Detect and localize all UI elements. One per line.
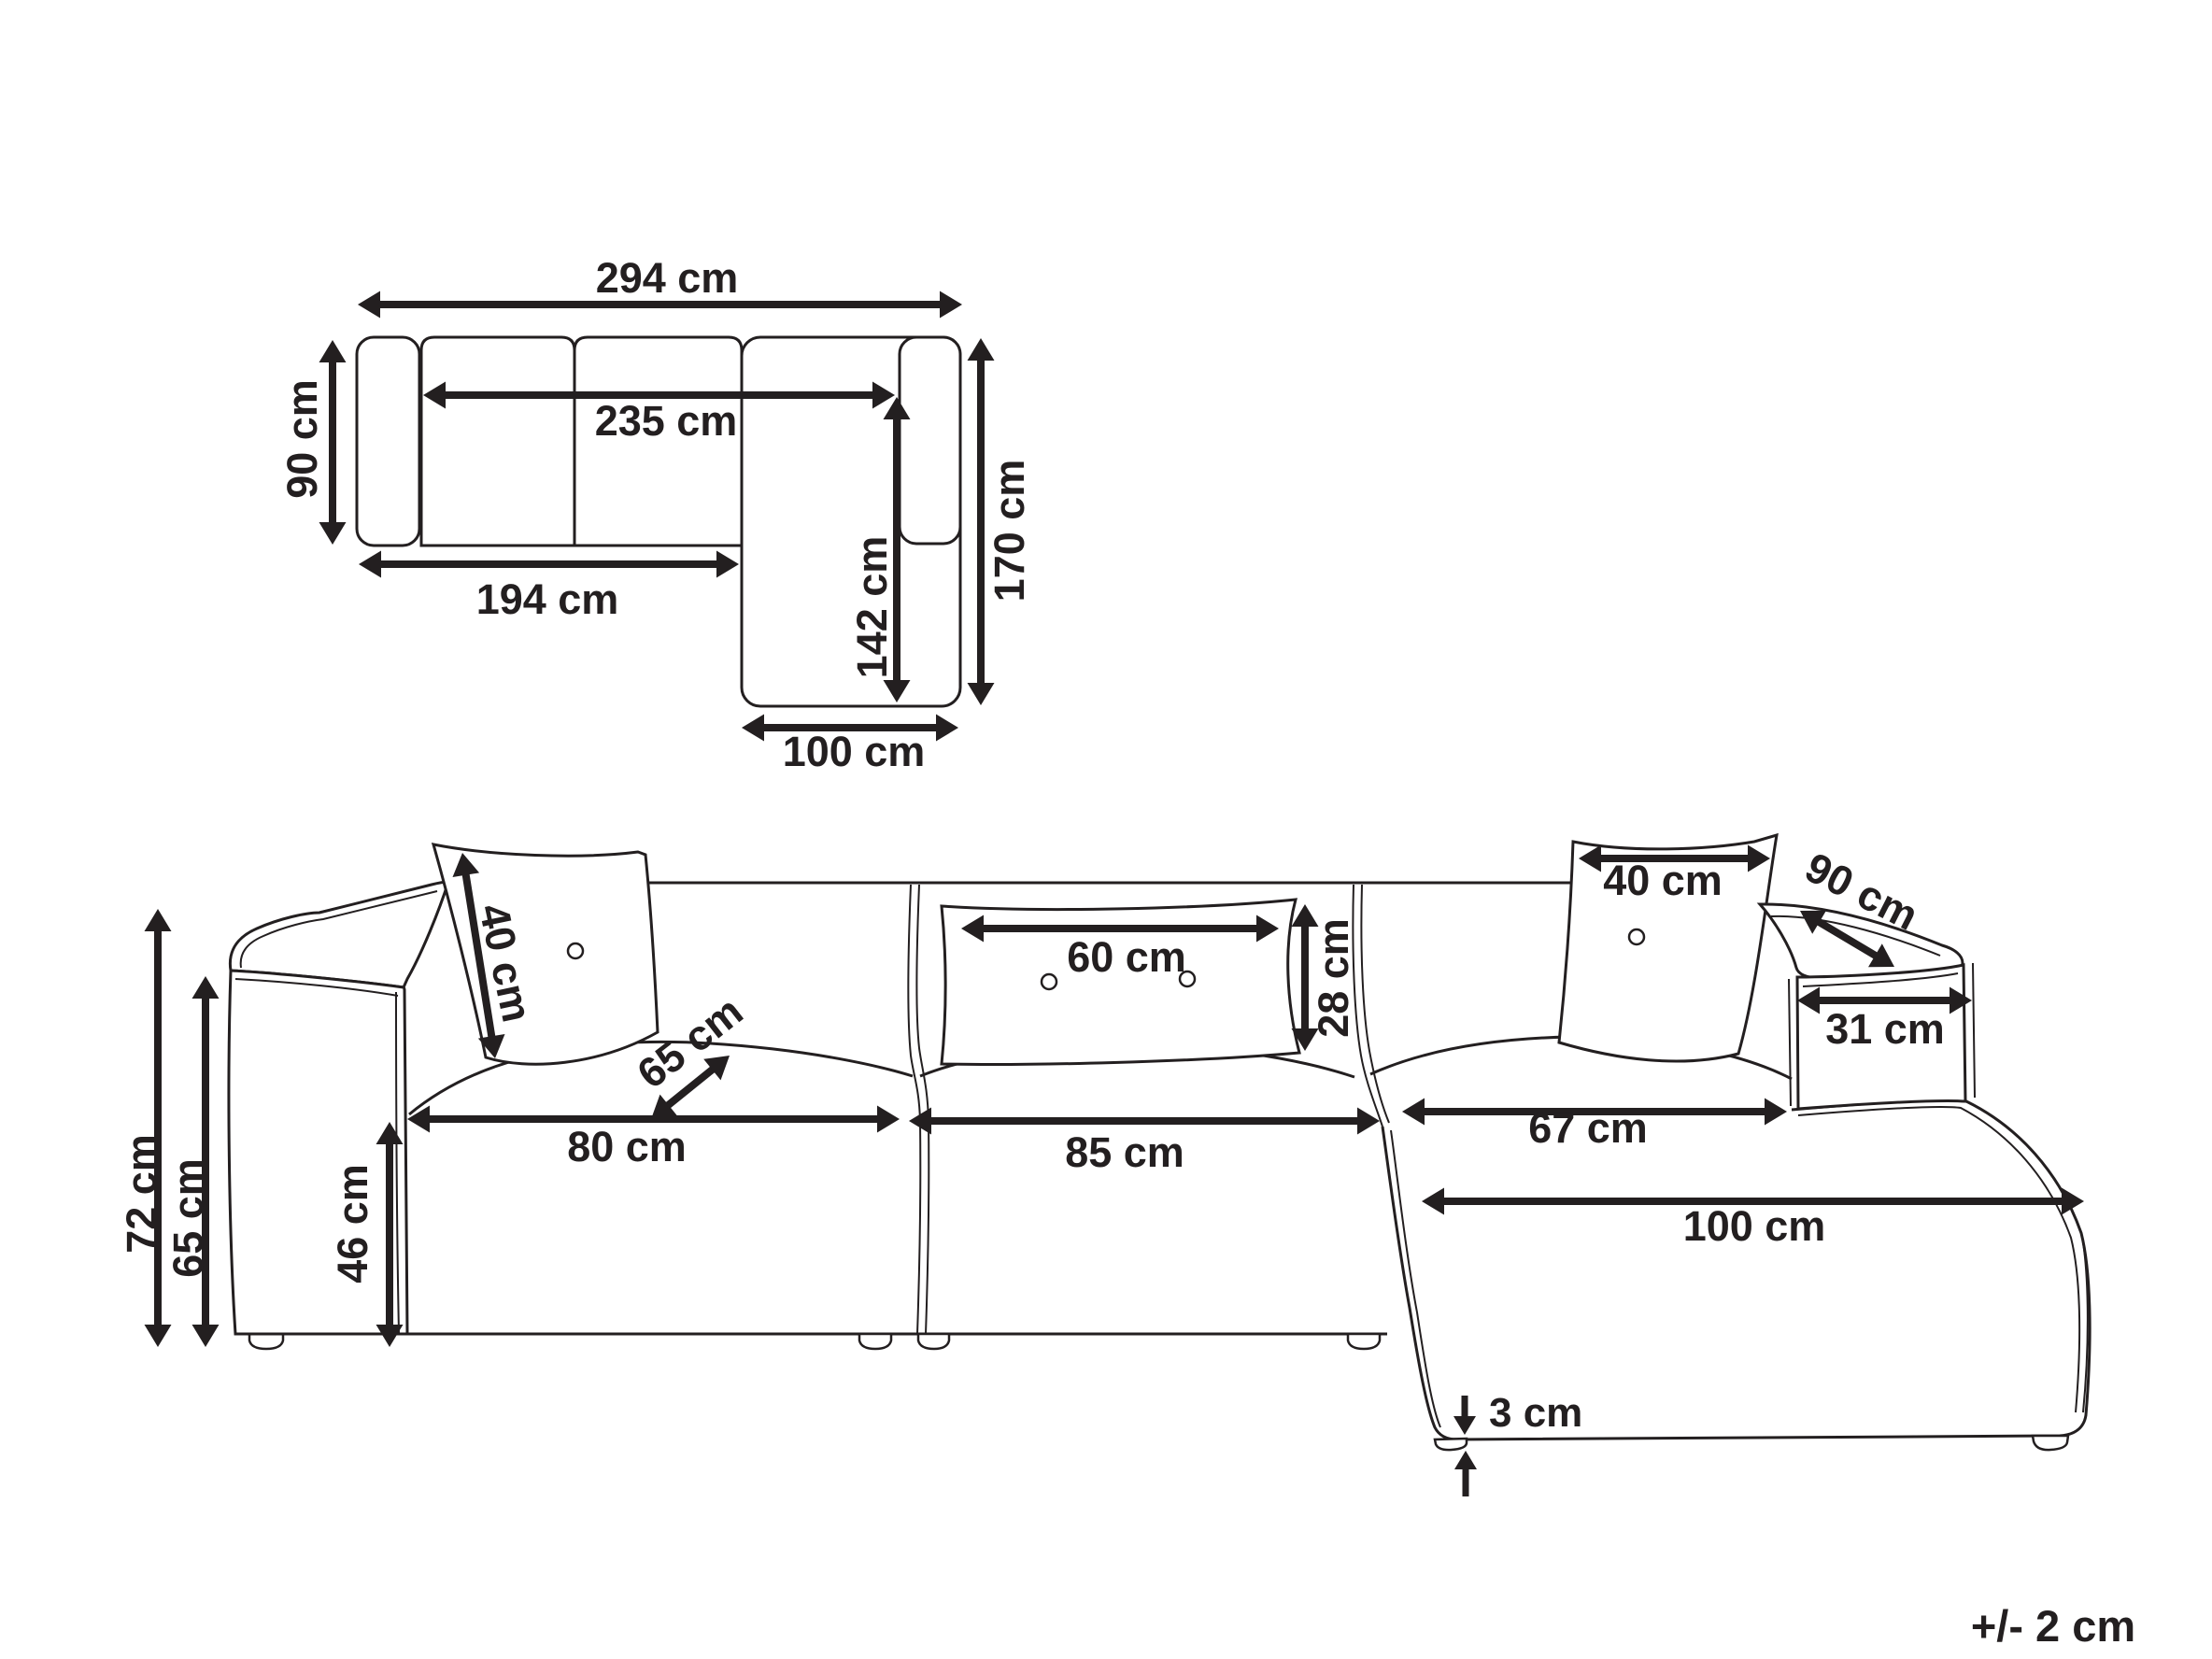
svg-text:+/- 2 cm: +/- 2 cm xyxy=(1971,1601,2135,1651)
svg-text:31 cm: 31 cm xyxy=(1825,1005,1945,1053)
svg-text:90 cm: 90 cm xyxy=(278,379,326,499)
svg-text:60 cm: 60 cm xyxy=(1067,933,1186,981)
svg-text:85 cm: 85 cm xyxy=(1065,1128,1184,1176)
svg-text:65 cm: 65 cm xyxy=(164,1158,212,1278)
svg-text:100 cm: 100 cm xyxy=(1683,1202,1826,1250)
svg-text:235 cm: 235 cm xyxy=(595,397,738,445)
svg-text:194 cm: 194 cm xyxy=(476,575,619,623)
svg-text:294 cm: 294 cm xyxy=(596,254,739,302)
svg-text:46 cm: 46 cm xyxy=(329,1164,376,1283)
svg-text:72 cm: 72 cm xyxy=(118,1134,165,1254)
svg-text:3 cm: 3 cm xyxy=(1489,1390,1582,1436)
svg-text:142 cm: 142 cm xyxy=(848,536,896,679)
svg-text:67 cm: 67 cm xyxy=(1528,1104,1648,1152)
svg-text:40 cm: 40 cm xyxy=(1603,857,1723,904)
svg-text:170 cm: 170 cm xyxy=(985,460,1033,603)
svg-text:100 cm: 100 cm xyxy=(783,728,926,775)
svg-text:80 cm: 80 cm xyxy=(567,1123,687,1170)
svg-text:28 cm: 28 cm xyxy=(1310,918,1357,1038)
